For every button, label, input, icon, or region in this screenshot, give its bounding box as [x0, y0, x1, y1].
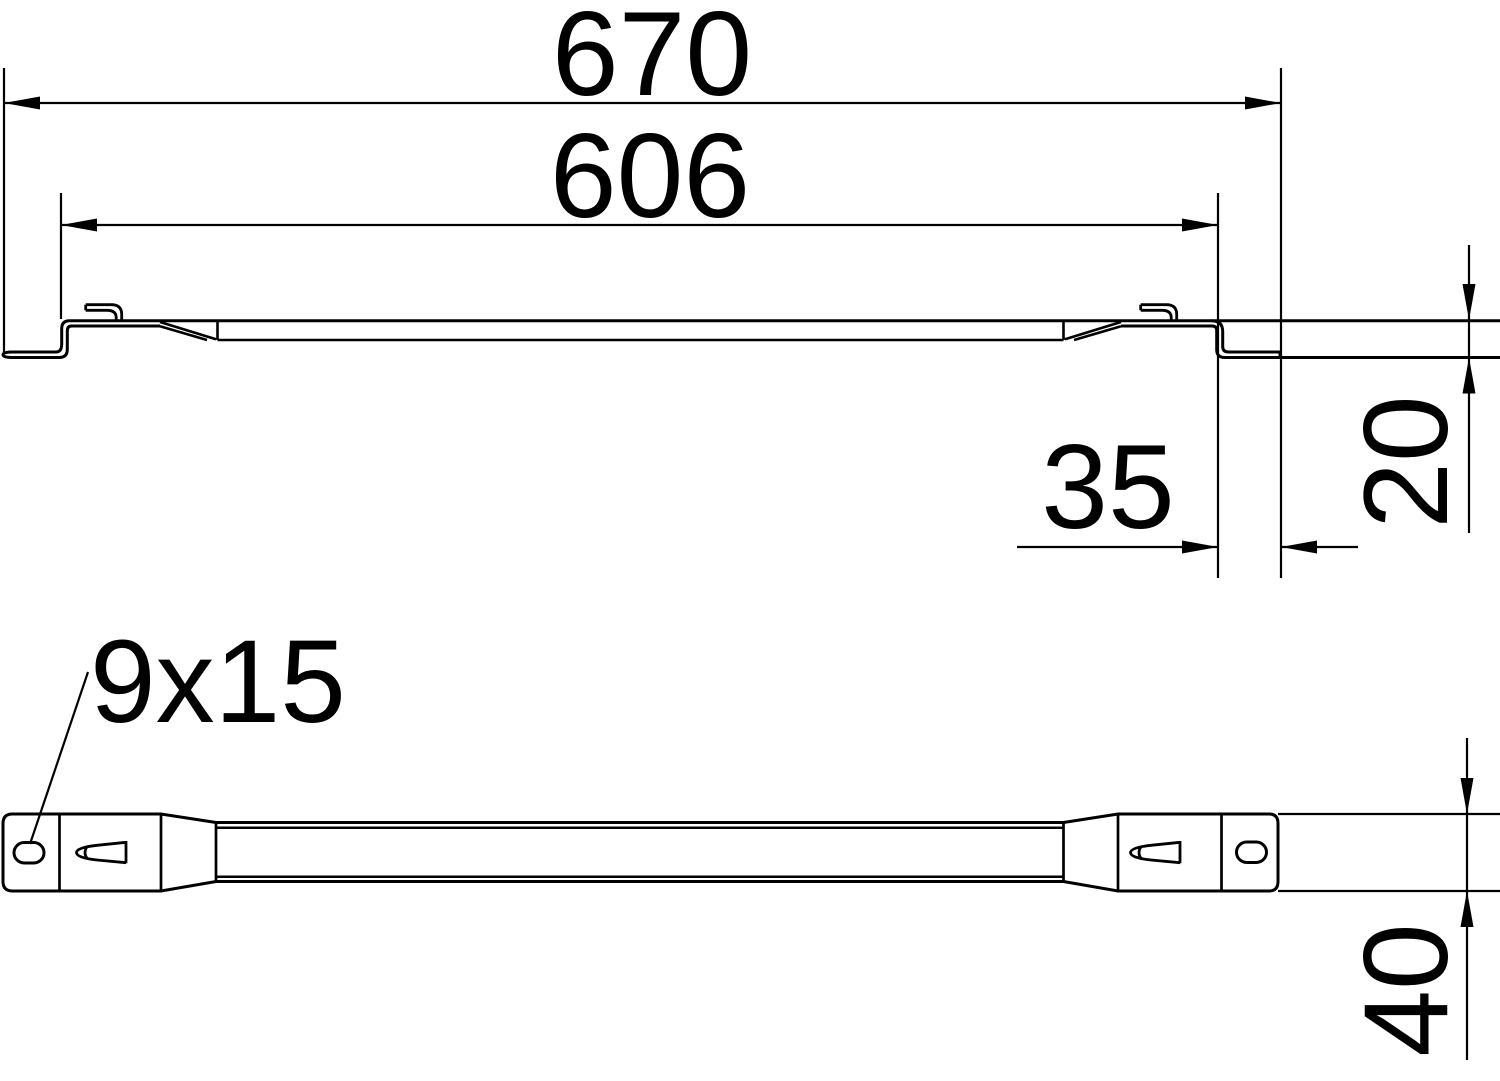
plan-view-outline [3, 814, 1278, 891]
dim-20-label: 20 [1339, 395, 1473, 528]
side-view-right-end-inner-profile [1121, 326, 1500, 358]
left-tongue-cutout [77, 841, 127, 863]
side-view-right-end-outer-profile [1212, 321, 1281, 358]
left-slot [14, 843, 44, 864]
dim-35-label: 35 [1041, 420, 1174, 554]
side-view-left-swage [160, 321, 218, 340]
dim-35-arrow-right [1281, 541, 1317, 554]
side-view-right-clip-tab [1141, 305, 1177, 321]
slot-size-label: 9x15 [90, 616, 346, 748]
right-slot [1237, 842, 1267, 863]
dim-35-arrow-left [1182, 541, 1218, 554]
side-view-left-clip-tab [86, 305, 122, 321]
plan-view-bend-lines [60, 814, 1222, 891]
dim-20-arrow-bottom [1463, 358, 1476, 394]
dimension-labels: 670 606 35 20 9x15 40 [90, 0, 1473, 1057]
side-view [3, 305, 1500, 358]
dim-20-arrow-top [1463, 284, 1476, 320]
dim-40-arrow-top [1461, 778, 1474, 814]
dim-670-label: 670 [552, 0, 752, 121]
dim-670-arrow-left [4, 97, 40, 110]
dim-606-label: 606 [550, 109, 750, 243]
plan-view-rib-inner-edges [216, 828, 1064, 877]
dim-40-label: 40 [1339, 923, 1473, 1056]
dimension-drawing: 670 606 35 20 9x15 40 [0, 0, 1500, 1081]
dim-670-arrow-right [1245, 97, 1281, 110]
dim-40-arrow-bottom [1461, 891, 1474, 927]
right-tongue-cutout [1131, 841, 1181, 863]
side-view-left-end-profile [3, 321, 160, 358]
dim-606-arrow-right [1182, 219, 1218, 232]
technical-drawing-page: 670 606 35 20 9x15 40 [0, 0, 1500, 1081]
side-view-right-swage [1064, 321, 1122, 340]
dim-606-arrow-left [61, 219, 97, 232]
